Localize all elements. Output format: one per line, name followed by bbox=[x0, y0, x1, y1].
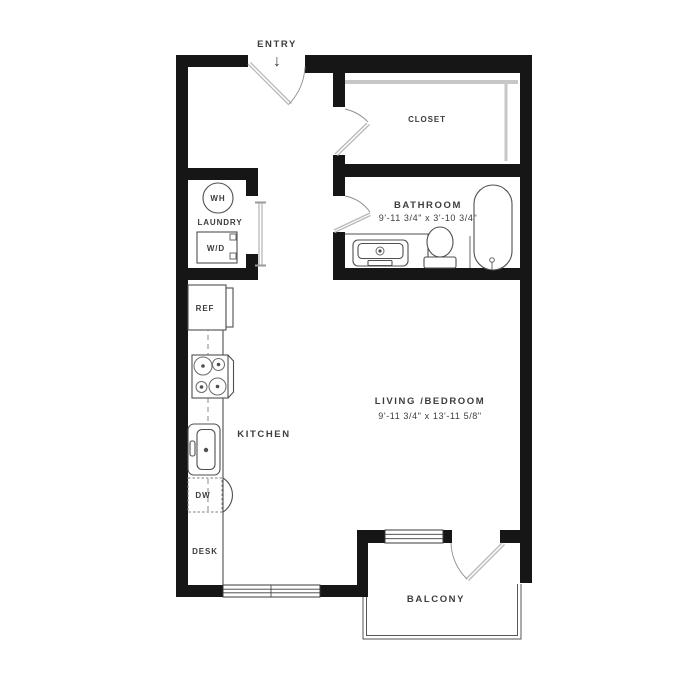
wall-balcony-b bbox=[443, 530, 452, 543]
wall-balcony-c bbox=[500, 530, 532, 543]
wall-closet-left-upper bbox=[333, 70, 345, 107]
floor-plan-page: ENTRY ↓ CLOSET WH LAUNDRY W/D BATHROOM 9… bbox=[0, 0, 700, 700]
wall-bathroom-left-upper bbox=[333, 164, 345, 196]
laundry-label: LAUNDRY bbox=[197, 218, 242, 227]
bathtub bbox=[474, 185, 512, 270]
wall-laundry-top bbox=[188, 168, 258, 180]
bathroom-door bbox=[334, 196, 371, 233]
stove bbox=[192, 355, 234, 398]
refrigerator-label: REF bbox=[196, 304, 215, 313]
wall-laundry-stub-upper bbox=[246, 180, 258, 196]
window-balcony bbox=[385, 530, 443, 543]
kitchen-sink bbox=[188, 424, 220, 475]
closet-door bbox=[335, 109, 370, 156]
wall-left bbox=[176, 55, 188, 597]
wall-balcony-left-strip bbox=[357, 530, 368, 597]
closet-label: CLOSET bbox=[408, 115, 446, 124]
dishwasher-label: DW bbox=[195, 491, 210, 500]
bathroom-vanity bbox=[345, 234, 428, 268]
wall-laundry-bottom bbox=[188, 268, 258, 280]
kitchen-label: KITCHEN bbox=[237, 429, 290, 440]
bathroom-dimensions: 9'-11 3/4" x 3'-10 3/4" bbox=[379, 213, 478, 223]
toilet bbox=[424, 227, 456, 268]
balcony-railing bbox=[363, 584, 521, 639]
water-heater-label: WH bbox=[210, 194, 225, 203]
wall-bottom-a bbox=[176, 585, 223, 597]
down-arrow-icon: ↓ bbox=[273, 53, 281, 70]
balcony-label: BALCONY bbox=[407, 594, 465, 605]
washer-dryer-label: W/D bbox=[207, 244, 225, 253]
wall-right bbox=[520, 55, 532, 583]
wall-closet-bathroom-divider bbox=[333, 164, 532, 177]
entry-label: ENTRY bbox=[257, 39, 297, 50]
floor-plan: ENTRY ↓ CLOSET WH LAUNDRY W/D BATHROOM 9… bbox=[0, 0, 700, 700]
desk-label: DESK bbox=[192, 547, 218, 556]
balcony-door bbox=[451, 543, 505, 581]
living-bedroom-label: LIVING /BEDROOM bbox=[375, 396, 486, 407]
bathroom-label: BATHROOM bbox=[394, 200, 462, 211]
living-bedroom-dimensions: 9'-11 3/4" x 13'-11 5/8" bbox=[378, 411, 481, 421]
window-bottom bbox=[223, 585, 320, 597]
wall-bathroom-bottom bbox=[333, 268, 532, 280]
